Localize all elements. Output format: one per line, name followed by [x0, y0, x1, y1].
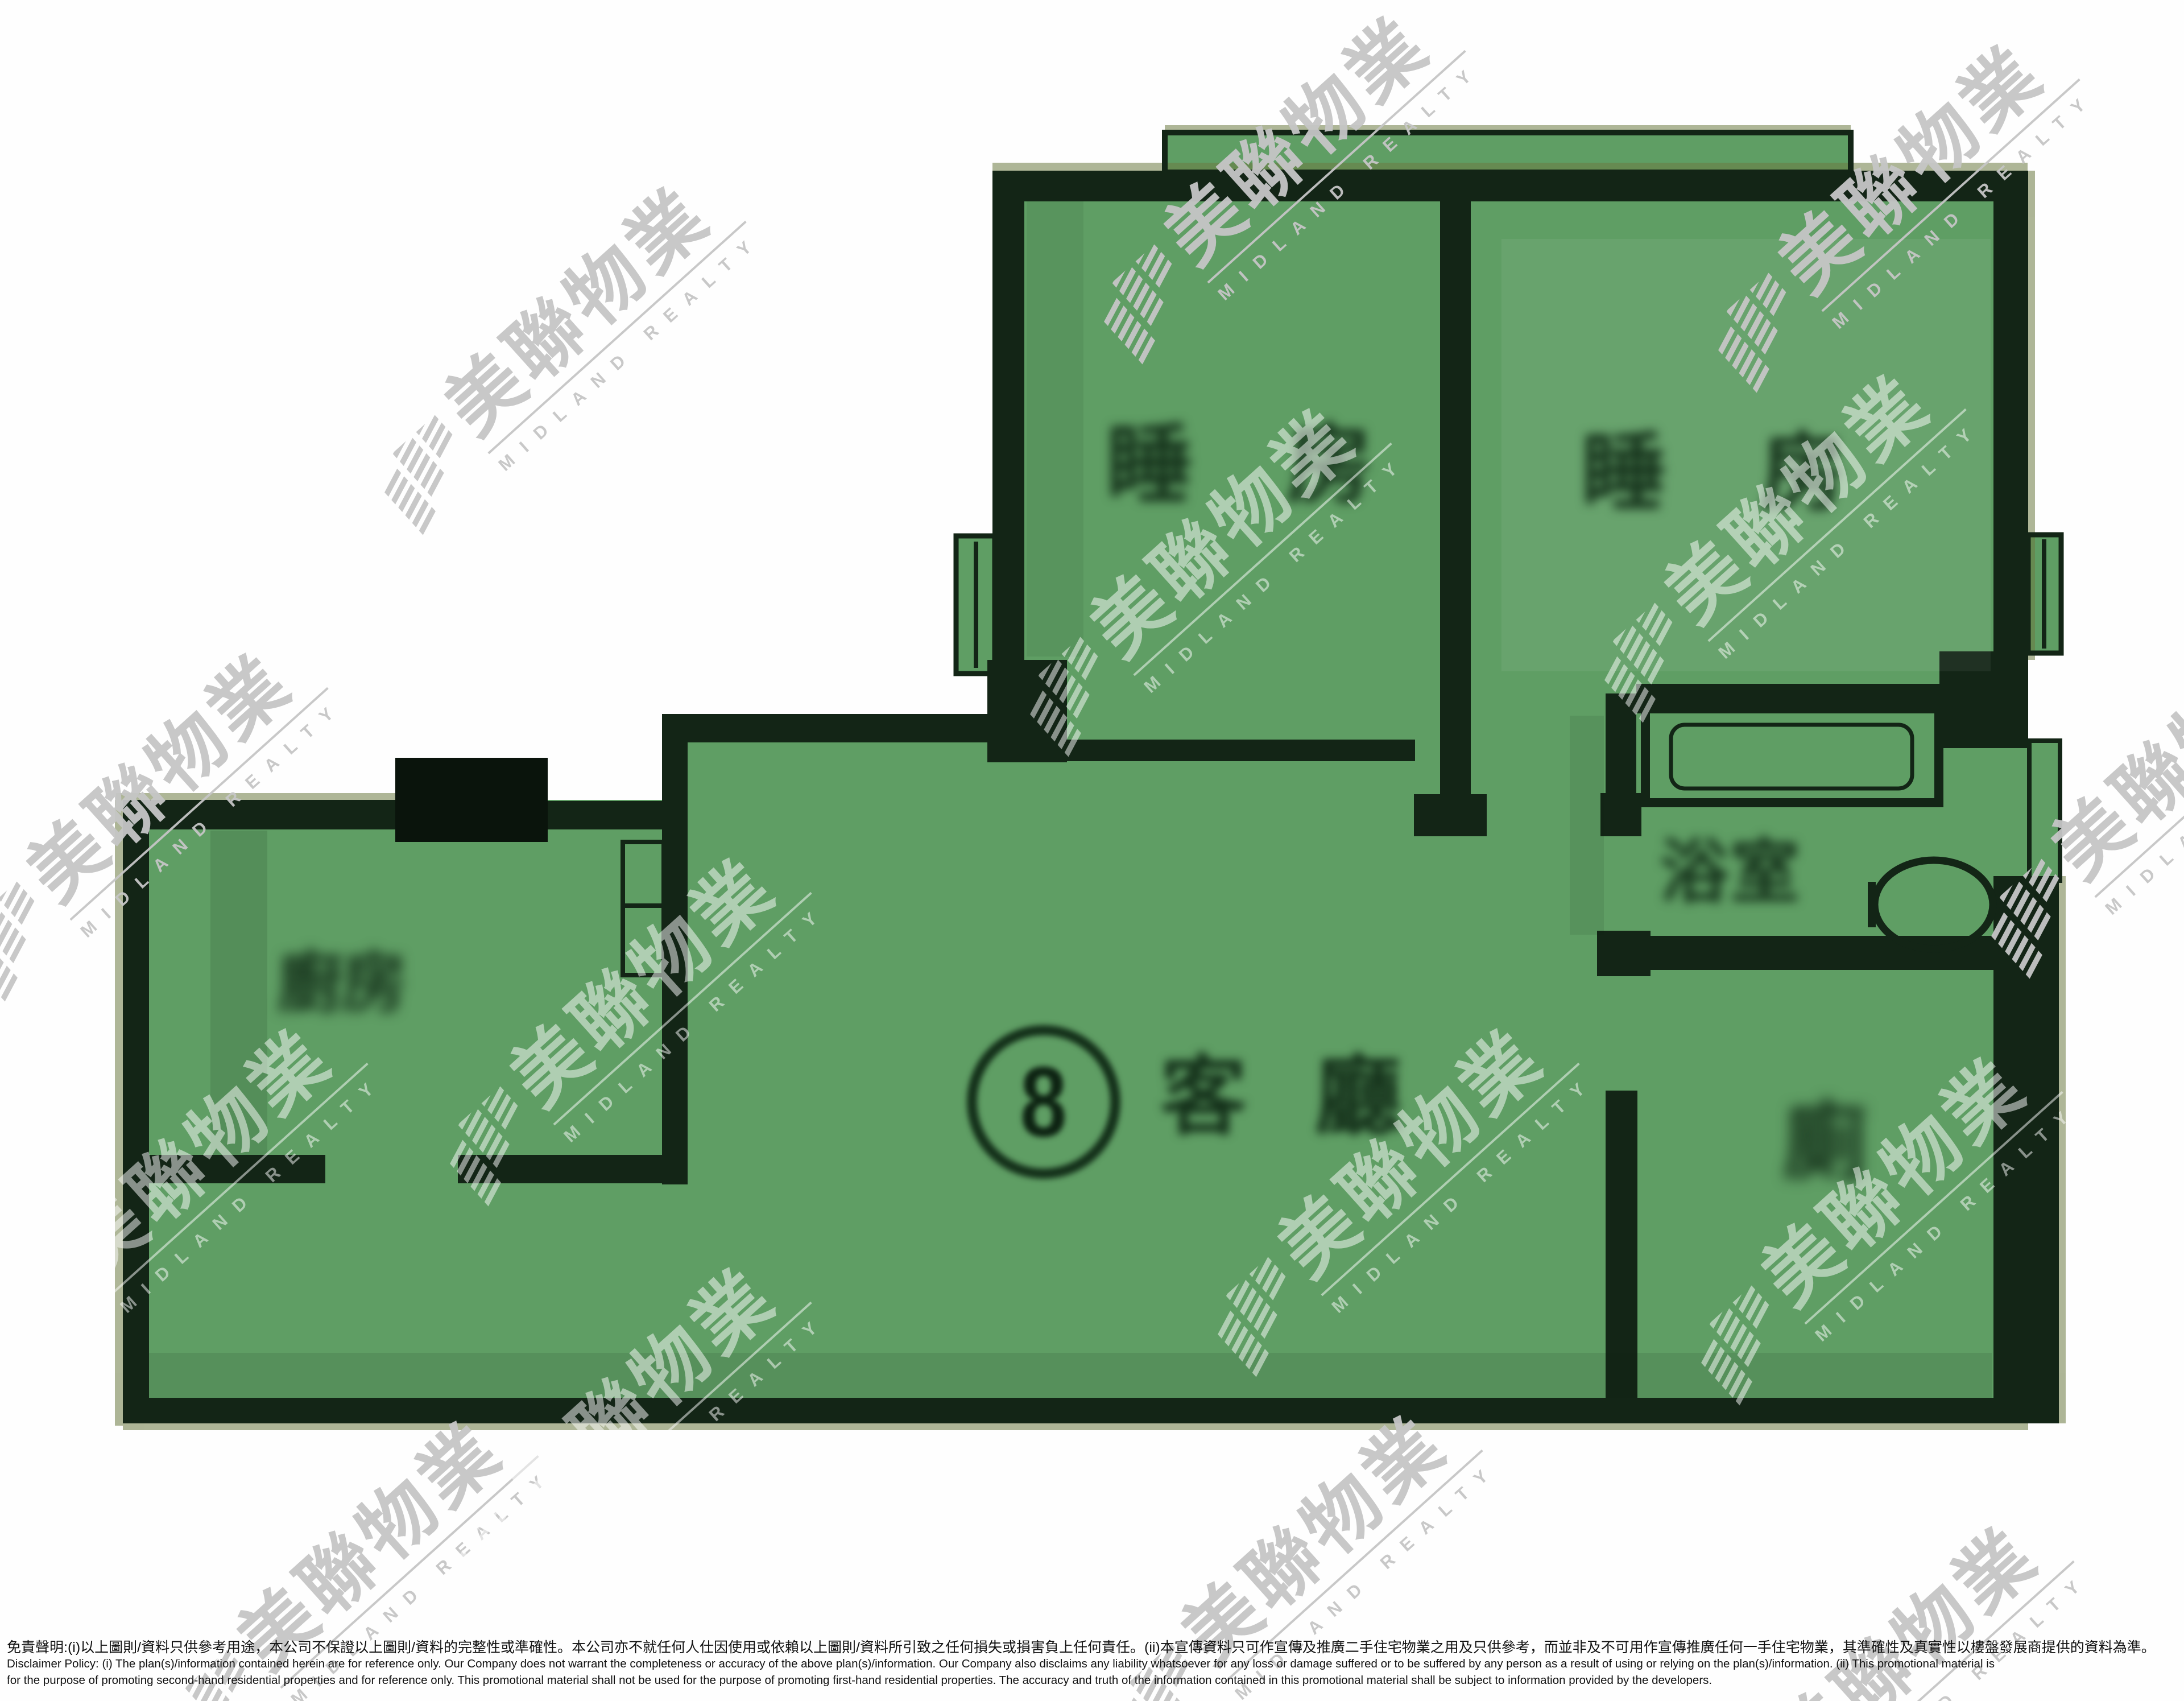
room-label-bedroom-left: 睡房 [1106, 422, 1467, 509]
room-label-kitchen: 廚房 [278, 950, 405, 1016]
unit-number-badge: 8 [967, 1025, 1120, 1179]
room-label-bedroom-right: 睡房 [1581, 430, 1939, 515]
disclaimer-line-chinese: 免責聲明:(i)以上圖則/資料只供參考用途，本公司不保證以上圖則/資料的完整性或… [7, 1636, 2156, 1657]
unit-number: 8 [1020, 1045, 1068, 1159]
floor-plan-drawing [0, 0, 2184, 1701]
room-label-store: 廁 [1783, 1101, 1867, 1185]
room-label-living-room: 客廳 [1160, 1054, 1470, 1140]
disclaimer-line-english-2: for the purpose of promoting second-hand… [7, 1674, 1712, 1687]
room-label-bathroom: 浴室 [1660, 837, 1801, 907]
floor-plan-page: 睡房 睡房 浴室 廚房 客廳 廁 8 美聯物業 MIDLAND REALTY 美… [0, 0, 2184, 1701]
disclaimer-line-english-1: Disclaimer Policy: (i) The plan(s)/infor… [7, 1657, 1995, 1671]
